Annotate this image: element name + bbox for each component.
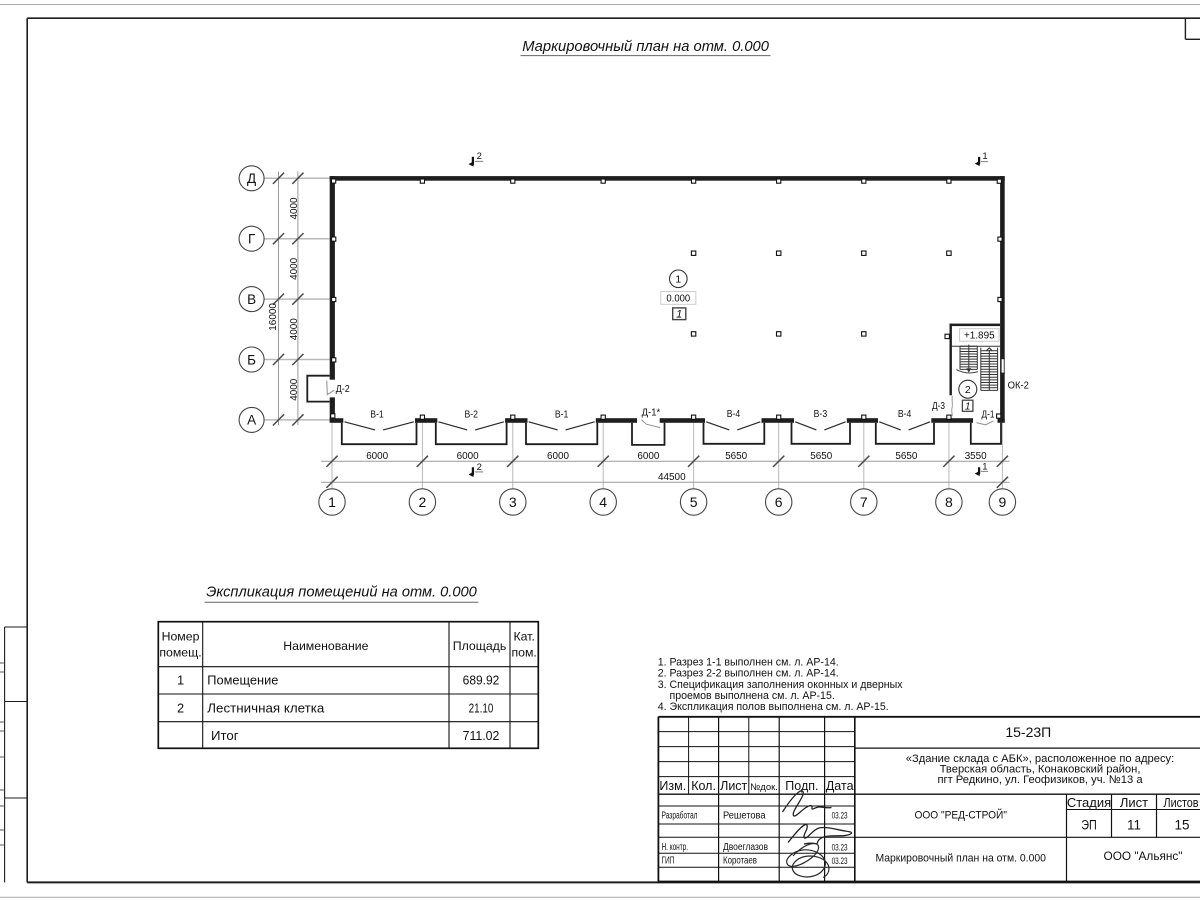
svg-text:Лестничная клетка: Лестничная клетка (207, 700, 325, 715)
svg-text:Наименование: Наименование (283, 639, 368, 653)
svg-text:Номер: Номер (162, 630, 200, 644)
svg-text:4: 4 (599, 494, 607, 510)
svg-text:Изм.: Изм. (659, 779, 686, 793)
svg-text:1. Разрез 1-1 выполнен см. л.: 1. Разрез 1-1 выполнен см. л. АР-14. (658, 656, 839, 668)
svg-text:6000: 6000 (366, 451, 388, 462)
svg-text:44500: 44500 (658, 472, 686, 483)
svg-text:5650: 5650 (895, 451, 917, 462)
svg-text:Маркировочный план на отм. 0.0: Маркировочный план на отм. 0.000 (875, 852, 1046, 864)
svg-text:Двоеглазов: Двоеглазов (723, 842, 768, 853)
svg-text:Экспликация помещений на отм.: Экспликация помещений на отм. 0.000 (206, 585, 477, 601)
svg-text:7: 7 (860, 494, 868, 510)
svg-text:1: 1 (982, 461, 987, 472)
svg-text:В-4: В-4 (727, 409, 741, 420)
svg-text:Помещение: Помещение (207, 673, 278, 688)
svg-text:1: 1 (675, 274, 681, 286)
svg-text:1: 1 (676, 308, 682, 320)
svg-text:Д-2: Д-2 (336, 384, 350, 395)
svg-text:ООО "Альянс": ООО "Альянс" (1104, 849, 1183, 863)
svg-text:Б: Б (247, 352, 256, 367)
svg-text:5: 5 (690, 494, 698, 510)
svg-text:21.10: 21.10 (469, 700, 494, 715)
svg-text:Разработал: Разработал (662, 811, 698, 822)
svg-text:15: 15 (1174, 817, 1189, 832)
svg-text:В-1: В-1 (555, 410, 569, 421)
svg-text:ООО "РЕД-СТРОЙ": ООО "РЕД-СТРОЙ" (914, 808, 1007, 821)
svg-text:16000: 16000 (268, 303, 279, 331)
svg-text:03.23: 03.23 (832, 856, 848, 867)
svg-text:В-4: В-4 (898, 409, 912, 420)
svg-text:ГИП: ГИП (662, 856, 675, 867)
svg-text:ЭП: ЭП (1081, 817, 1097, 832)
svg-text:5650: 5650 (725, 451, 747, 462)
svg-text:689.92: 689.92 (463, 673, 500, 688)
svg-text:9: 9 (999, 494, 1007, 510)
svg-text:пгт Редкино, ул. Геофизиков, у: пгт Редкино, ул. Геофизиков, уч. №13 а (937, 774, 1143, 786)
svg-text:Итог: Итог (211, 728, 239, 743)
svg-text:03.23: 03.23 (832, 811, 848, 822)
svg-text:4000: 4000 (289, 257, 300, 279)
svg-text:Маркировочный план на отм. 0.0: Маркировочный план на отм. 0.000 (522, 38, 769, 55)
svg-text:В-2: В-2 (464, 410, 478, 421)
svg-text:6000: 6000 (457, 451, 479, 462)
svg-text:03.23: 03.23 (832, 843, 848, 854)
svg-text:Лист: Лист (1120, 795, 1148, 810)
svg-text:6000: 6000 (637, 451, 659, 462)
svg-text:Лист: Лист (720, 779, 747, 793)
svg-text:4000: 4000 (289, 318, 300, 340)
svg-text:11: 11 (1127, 817, 1141, 832)
svg-text:4000: 4000 (289, 378, 300, 400)
svg-text:ОК-2: ОК-2 (1008, 380, 1029, 392)
svg-text:1: 1 (328, 494, 336, 510)
svg-text:проемов выполнена см. л. АР-15: проемов выполнена см. л. АР-15. (658, 690, 835, 702)
svg-text:А: А (247, 413, 256, 428)
svg-text:пом.: пом. (511, 645, 536, 659)
svg-text:1: 1 (965, 402, 971, 413)
svg-text:№док.: №док. (750, 782, 778, 793)
svg-text:2: 2 (177, 700, 184, 715)
svg-text:Д-1*: Д-1* (642, 407, 661, 418)
svg-text:4000: 4000 (289, 197, 300, 219)
svg-text:2. Разрез 2-2 выполнен см. л.: 2. Разрез 2-2 выполнен см. л. АР-14. (658, 668, 839, 680)
svg-text:В-3: В-3 (814, 409, 828, 420)
svg-text:Н. контр.: Н. контр. (662, 842, 689, 853)
svg-text:Листов: Листов (1164, 795, 1199, 810)
svg-text:2: 2 (477, 462, 482, 473)
svg-text:помещ.: помещ. (159, 645, 201, 659)
svg-text:15-23П: 15-23П (1005, 724, 1051, 740)
svg-text:В: В (247, 292, 256, 307)
svg-text:+1.895: +1.895 (964, 330, 995, 341)
svg-text:Д: Д (247, 171, 256, 186)
svg-text:711.02: 711.02 (463, 728, 500, 743)
svg-text:6000: 6000 (547, 451, 569, 462)
svg-text:Решетова: Решетова (723, 811, 766, 822)
svg-text:Кол.: Кол. (691, 779, 716, 793)
svg-text:2: 2 (477, 151, 482, 162)
svg-text:1: 1 (982, 151, 987, 162)
svg-text:Кат.: Кат. (513, 630, 534, 644)
svg-text:Д-1: Д-1 (982, 409, 995, 420)
svg-text:2: 2 (419, 494, 427, 510)
svg-text:Г: Г (248, 232, 256, 247)
svg-text:Дата: Дата (826, 779, 854, 793)
svg-text:Д-3: Д-3 (932, 401, 945, 412)
svg-text:3. Спецификация заполнения око: 3. Спецификация заполнения оконных и две… (658, 679, 904, 691)
svg-text:Площадь: Площадь (453, 639, 507, 653)
svg-text:8: 8 (945, 494, 953, 510)
svg-text:6: 6 (775, 494, 783, 510)
svg-text:3550: 3550 (965, 451, 987, 462)
svg-text:Коротаев: Коротаев (723, 856, 757, 867)
svg-text:2: 2 (965, 384, 971, 396)
svg-text:5650: 5650 (810, 451, 832, 462)
svg-text:3: 3 (509, 494, 517, 510)
svg-text:1: 1 (177, 673, 184, 688)
svg-text:0.000: 0.000 (666, 293, 690, 304)
svg-text:В-1: В-1 (370, 410, 384, 421)
svg-text:4. Экспликация полов выполнена: 4. Экспликация полов выполнена см. л. АР… (658, 701, 889, 713)
svg-text:Стадия: Стадия (1067, 795, 1111, 810)
